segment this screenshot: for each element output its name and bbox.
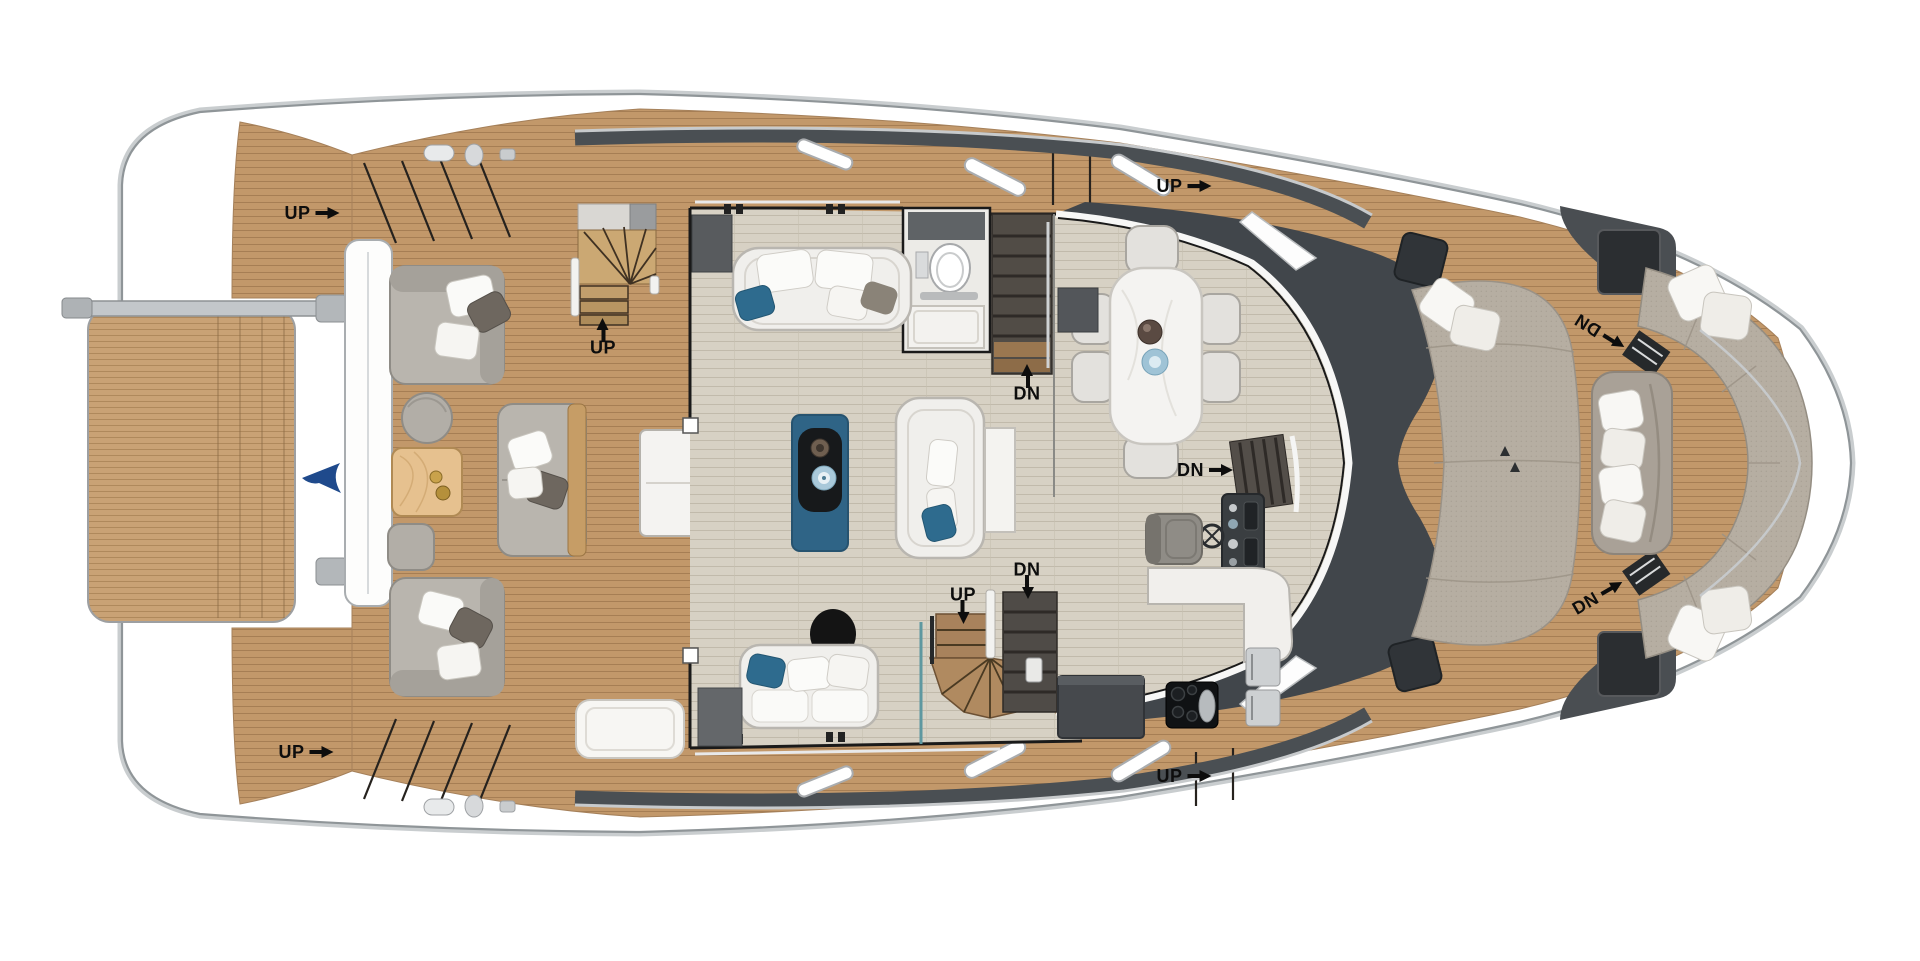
head-toilet-room [903, 208, 990, 352]
arrow-right-icon [1209, 464, 1233, 477]
stove-cooktop [1166, 682, 1218, 728]
salon-cabinet-aft [698, 688, 742, 746]
pillow [1598, 463, 1645, 506]
pillow [1597, 389, 1645, 434]
salon-sofa-middle [896, 398, 984, 558]
dining-cabinet [1058, 288, 1098, 332]
pillow [1600, 427, 1647, 470]
pillow [1699, 585, 1753, 635]
arrow-up-icon [1021, 364, 1034, 388]
brass-ball [430, 471, 442, 483]
newel-post [986, 590, 995, 658]
passerelle-bracket-port [316, 295, 348, 322]
pillow [434, 321, 480, 361]
foredeck [1412, 206, 1812, 720]
pillow [926, 439, 959, 488]
arrow-down-icon [956, 600, 969, 624]
square-pouf [388, 524, 434, 570]
label-up-aft-port-steps: UP [284, 204, 339, 222]
bow-center-seat [1592, 372, 1672, 554]
label-up-side-deck-port: UP [1156, 177, 1211, 195]
aft-armchair-starboard [390, 578, 504, 696]
label-text: UP [278, 743, 304, 761]
port-hull-staircase [992, 214, 1052, 374]
pillow [1699, 291, 1753, 341]
door-jamb [683, 418, 698, 433]
arrow-right-icon [1188, 180, 1212, 193]
swim-platform [88, 308, 295, 622]
round-pouf [402, 393, 452, 443]
stair-fitting [1026, 658, 1042, 682]
label-text: UP [1156, 177, 1182, 195]
arrow-right-icon [1188, 770, 1212, 783]
pillow [786, 656, 831, 692]
passerelle-end-fitting [62, 298, 92, 318]
toilet-tank [916, 252, 928, 278]
deck-plan-drawing [0, 0, 1920, 961]
label-up-aft-starboard-steps: UP [278, 743, 333, 761]
label-up-salon-spiral: UP [950, 586, 976, 619]
label-text: UP [1156, 767, 1182, 785]
salon-sofa-aft [740, 645, 878, 728]
arrow-right-icon [316, 207, 340, 220]
brass-ball [436, 486, 450, 500]
table-vase [1138, 320, 1162, 344]
passerelle-gangway [64, 301, 322, 316]
aft-armchair-port [390, 266, 513, 384]
galley-island [1058, 676, 1144, 738]
toilet-icon [930, 244, 970, 292]
salon-coffee-table-blue [792, 415, 848, 551]
label-dn-port-hull: DN [1014, 370, 1041, 403]
passerelle-bracket-starboard [316, 558, 348, 585]
starboard-quarter-deck [232, 628, 352, 804]
label-up-aft-spiral: UP [590, 324, 616, 357]
starboard-hull-staircase [1003, 592, 1057, 712]
toilet-base [920, 292, 978, 300]
head-counter [908, 212, 985, 240]
arrow-up-icon [596, 318, 609, 342]
pillow [507, 466, 544, 499]
salon-cabinet-forward [692, 215, 732, 272]
aft-coffee-table [392, 448, 462, 516]
arrow-right-icon [310, 746, 334, 759]
door-jamb [683, 648, 698, 663]
helm-seat [1146, 514, 1202, 564]
label-text: UP [284, 204, 310, 222]
pillow [436, 641, 482, 681]
label-dn-starboard-hull: DN [1014, 561, 1041, 594]
aft-bench-sofa [498, 404, 586, 556]
pillow [826, 653, 870, 690]
salon-sofa-forward [733, 248, 911, 330]
label-up-side-deck-starboard: UP [1156, 767, 1211, 785]
pillow [814, 249, 874, 293]
arrow-down-icon [1021, 575, 1034, 599]
pillow [1599, 498, 1648, 544]
shower-pan [908, 306, 984, 348]
helm-display [1244, 538, 1258, 566]
helm-display [1244, 502, 1258, 530]
label-text: DN [1177, 461, 1204, 479]
yacht-main-deck-plan: UP UP UP UP UP UP DN DN DN DN DN [0, 0, 1920, 961]
deck-hatch [1387, 635, 1443, 693]
salon-interior [683, 202, 1449, 754]
label-dn-galley: DN [1177, 461, 1233, 479]
galley-marble-cabinet [985, 428, 1015, 532]
